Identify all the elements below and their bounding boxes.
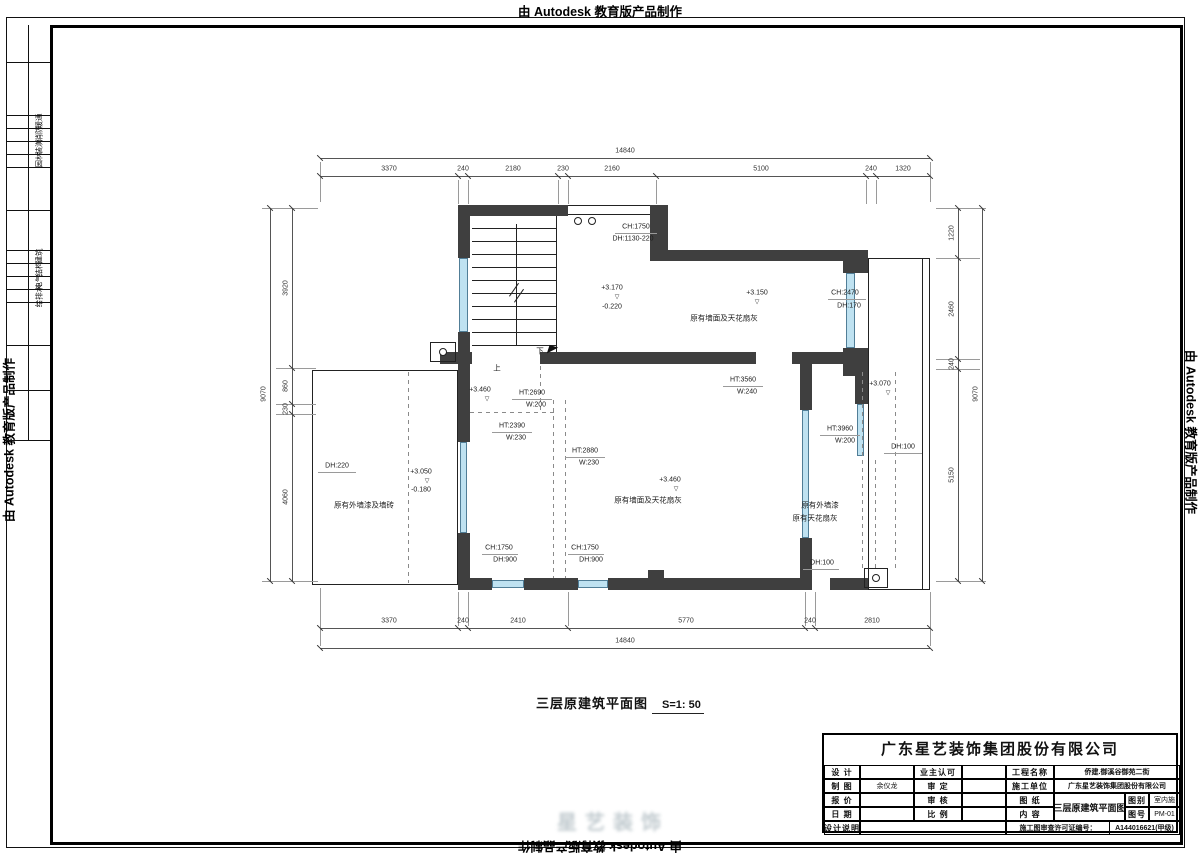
titleblock-project-name-value: 侨建.御溪谷御苑二街 bbox=[1054, 765, 1180, 779]
plan-line bbox=[472, 306, 556, 307]
plan-line bbox=[509, 283, 519, 297]
dimension-text: 9070 bbox=[261, 386, 268, 402]
extension-line bbox=[803, 569, 839, 570]
dimension-text: 5150 bbox=[949, 467, 956, 483]
titleblock-quote-value bbox=[860, 793, 914, 807]
titleblock-drafting-label: 制 图 bbox=[824, 779, 860, 793]
plan-annotation: W:200 bbox=[835, 438, 855, 445]
extension-line bbox=[930, 162, 931, 202]
window-symbol bbox=[492, 580, 524, 588]
plan-annotation: W:240 bbox=[737, 389, 757, 396]
plan-line bbox=[472, 293, 556, 294]
level-marker-icon: ▽ bbox=[615, 294, 620, 301]
dimension-text: 860 bbox=[283, 380, 290, 392]
plan-annotation: CH:2470 bbox=[831, 290, 859, 297]
dimension-line bbox=[958, 208, 959, 581]
titleblock-drawing-title-value: 三层原建筑平面图 bbox=[1054, 793, 1125, 821]
plan-line bbox=[568, 214, 650, 215]
titleblock-date-value bbox=[860, 807, 914, 821]
dimension-line bbox=[320, 176, 930, 177]
wall-segment bbox=[458, 205, 568, 216]
dimension-text: 2460 bbox=[949, 301, 956, 317]
plan-annotation: W:230 bbox=[579, 460, 599, 467]
extension-line bbox=[568, 554, 604, 555]
dashed-line bbox=[470, 412, 556, 413]
dimension-text: 3920 bbox=[283, 280, 290, 296]
wall-segment bbox=[458, 578, 492, 590]
titleblock-approval-value bbox=[962, 779, 1006, 793]
dimension-text: 2160 bbox=[604, 166, 620, 173]
plan-line bbox=[568, 205, 650, 206]
extension-line bbox=[936, 208, 986, 209]
plan-annotation: DH:170 bbox=[837, 303, 861, 310]
wall-segment bbox=[650, 250, 850, 261]
plan-annotation: -0.220 bbox=[602, 304, 622, 311]
company-watermark: 星艺装饰 bbox=[528, 806, 698, 835]
plan-annotation: CH:1750 bbox=[485, 545, 513, 552]
wall-segment bbox=[458, 216, 470, 258]
dimension-text: 240 bbox=[865, 166, 877, 173]
extension-line bbox=[458, 180, 459, 204]
window-symbol bbox=[846, 273, 855, 348]
titleblock-audit-label: 审 核 bbox=[914, 793, 962, 807]
extension-line bbox=[482, 554, 518, 555]
plan-annotation: DH:220 bbox=[325, 463, 349, 470]
extension-line bbox=[492, 432, 532, 433]
wall-segment bbox=[568, 352, 756, 364]
drawing-sheet: 由 Autodesk 教育版产品制作 由 Autodesk 教育版产品制作 由 … bbox=[0, 0, 1200, 859]
dimension-text: 3370 bbox=[381, 166, 397, 173]
plan-line bbox=[652, 713, 704, 714]
dimension-text: 240 bbox=[457, 618, 469, 625]
extension-line bbox=[568, 592, 569, 626]
extension-line bbox=[320, 162, 321, 202]
plan-line bbox=[472, 241, 556, 242]
dimension-line bbox=[982, 208, 983, 581]
titleblock-owner-approval-value bbox=[962, 765, 1006, 779]
wall-segment bbox=[830, 578, 868, 590]
wall-segment bbox=[843, 250, 868, 273]
dimension-text: 2410 bbox=[510, 618, 526, 625]
plan-annotation: W:230 bbox=[506, 435, 526, 442]
plan-line bbox=[472, 332, 556, 333]
extension-line bbox=[936, 581, 986, 582]
titleblock-design-value bbox=[860, 765, 914, 779]
extension-line bbox=[866, 180, 867, 204]
titleblock-project-name-label: 工程名称 bbox=[1006, 765, 1054, 779]
dashed-line bbox=[862, 372, 863, 570]
dashed-line bbox=[565, 400, 566, 578]
thin-outline bbox=[868, 258, 930, 590]
plan-annotation: HT:3960 bbox=[827, 426, 853, 433]
extension-line bbox=[568, 180, 569, 204]
dimension-text: 2810 bbox=[864, 618, 880, 625]
dimension-text: 2180 bbox=[505, 166, 521, 173]
titleblock-audit-value bbox=[962, 793, 1006, 807]
plan-caption-scale: S=1: 50 bbox=[662, 699, 701, 711]
plan-annotation: DH:900 bbox=[579, 557, 603, 564]
dimension-text: 240 bbox=[949, 358, 956, 370]
dimension-text: 1220 bbox=[949, 225, 956, 241]
wall-segment bbox=[648, 570, 664, 579]
dimension-line bbox=[292, 208, 293, 581]
titleblock-design-notes-value bbox=[860, 821, 1006, 835]
extension-line bbox=[320, 588, 321, 646]
plan-caption-title: 三层原建筑平面图 bbox=[536, 693, 648, 712]
plan-annotation: 原有墙面及天花扇灰 bbox=[614, 495, 682, 506]
titleblock-category-label: 图别 bbox=[1125, 793, 1149, 807]
extension-line bbox=[820, 435, 860, 436]
plan-line bbox=[472, 254, 556, 255]
plan-annotation: 原有天花扇灰 bbox=[793, 513, 838, 524]
dimension-text: 1320 bbox=[895, 166, 911, 173]
dimension-text: 5100 bbox=[753, 166, 769, 173]
plan-annotation: HT:2390 bbox=[499, 423, 525, 430]
extension-line bbox=[468, 180, 469, 204]
fixture-circle bbox=[574, 217, 582, 225]
titleblock-scale-value bbox=[962, 807, 1006, 821]
titleblock-design-label: 设 计 bbox=[824, 765, 860, 779]
plan-annotation: +3.460 bbox=[469, 387, 491, 394]
dashed-line bbox=[553, 400, 554, 578]
level-marker-icon: ▽ bbox=[425, 478, 430, 485]
dimension-line bbox=[320, 648, 930, 649]
titleblock-design-notes-label: 设计说明 bbox=[824, 821, 860, 835]
titleblock-date-label: 日 期 bbox=[824, 807, 860, 821]
plan-annotation: CH:1750 bbox=[622, 224, 650, 231]
wall-segment bbox=[800, 364, 812, 410]
plan-annotation: +3.150 bbox=[746, 290, 768, 297]
titleblock-approval-label: 审 定 bbox=[914, 779, 962, 793]
level-marker-icon: ▽ bbox=[674, 486, 679, 493]
plan-annotation: 原有外墙漆及墙砖 bbox=[334, 500, 394, 511]
plan-annotation: DH:900 bbox=[493, 557, 517, 564]
plan-annotation: +3.170 bbox=[601, 285, 623, 292]
window-symbol bbox=[459, 258, 468, 332]
company-name: 广东星艺装饰集团股份有限公司 bbox=[824, 735, 1176, 766]
dimension-text: 230 bbox=[557, 166, 569, 173]
dimension-line bbox=[320, 158, 930, 159]
plan-line bbox=[472, 267, 556, 268]
dashed-line bbox=[408, 372, 409, 583]
fixture-circle bbox=[588, 217, 596, 225]
dashed-line bbox=[875, 460, 876, 570]
dimension-text: 14840 bbox=[615, 638, 634, 645]
extension-line bbox=[512, 399, 552, 400]
dimension-text: 9070 bbox=[973, 386, 980, 402]
titleblock-permit-value: A144016621(甲级) bbox=[1110, 821, 1180, 835]
title-block: 广东星艺装饰集团股份有限公司 设 计业主认可工程名称侨建.御溪谷御苑二街制 图余… bbox=[822, 733, 1178, 833]
extension-line bbox=[876, 180, 877, 204]
plan-annotation: 下 bbox=[536, 346, 544, 357]
extension-line bbox=[615, 233, 657, 234]
wall-segment bbox=[792, 352, 868, 364]
plan-annotation: 上 bbox=[493, 363, 501, 374]
extension-line bbox=[930, 592, 931, 646]
plan-line bbox=[472, 319, 556, 320]
plan-annotation: 原有墙面及天花扇灰 bbox=[690, 313, 758, 324]
wall-segment bbox=[524, 578, 578, 590]
extension-line bbox=[565, 457, 605, 458]
titleblock-sheet-label: 图 纸 bbox=[1006, 793, 1054, 807]
plan-annotation: +3.050 bbox=[410, 469, 432, 476]
titleblock-quote-label: 报 价 bbox=[824, 793, 860, 807]
level-marker-icon: ▽ bbox=[755, 299, 760, 306]
plan-line bbox=[922, 258, 923, 590]
extension-line bbox=[656, 180, 657, 204]
extension-line bbox=[828, 299, 866, 300]
plan-annotation: 原有外墙漆 bbox=[801, 500, 839, 511]
titleblock-number-label: 图号 bbox=[1125, 807, 1149, 821]
dimension-line bbox=[270, 208, 271, 581]
floor-plan: 1484033702402180230216051002401320337024… bbox=[0, 0, 1200, 859]
plan-annotation: DH:100 bbox=[810, 560, 834, 567]
window-symbol bbox=[460, 442, 467, 533]
dashed-line bbox=[895, 372, 896, 570]
window-symbol bbox=[578, 580, 608, 588]
plan-annotation: +3.070 bbox=[869, 381, 891, 388]
plan-annotation: DH:100 bbox=[891, 444, 915, 451]
titleblock-number-value: PM-01 bbox=[1149, 807, 1180, 821]
plan-annotation: +3.460 bbox=[659, 477, 681, 484]
plan-line bbox=[472, 280, 556, 281]
plan-annotation: W:200 bbox=[526, 402, 546, 409]
dimension-text: 240 bbox=[457, 166, 469, 173]
fixture-circle bbox=[872, 574, 880, 582]
plan-line bbox=[556, 216, 557, 352]
extension-line bbox=[558, 180, 559, 204]
titleblock-content-label: 内 容 bbox=[1006, 807, 1054, 821]
extension-line bbox=[276, 368, 316, 369]
plan-annotation: DH:1130-220 bbox=[612, 236, 653, 243]
plan-line bbox=[472, 228, 556, 229]
dimension-text: 4060 bbox=[283, 489, 290, 505]
titleblock-permit-label: 施工图审查许可证编号： bbox=[1006, 821, 1110, 835]
wall-segment bbox=[458, 364, 470, 442]
titleblock-owner-approval-label: 业主认可 bbox=[914, 765, 962, 779]
titleblock-contractor-label: 施工单位 bbox=[1006, 779, 1054, 793]
level-marker-icon: ▽ bbox=[886, 390, 891, 397]
dimension-text: 14840 bbox=[615, 148, 634, 155]
plan-annotation: HT:2880 bbox=[572, 448, 598, 455]
dimension-text: 240 bbox=[804, 618, 816, 625]
titleblock-category-value: 室内施 bbox=[1149, 793, 1180, 807]
fixture-circle bbox=[439, 348, 447, 356]
titleblock-contractor-value: 广东星艺装饰集团股份有限公司 bbox=[1054, 779, 1180, 793]
wall-segment bbox=[608, 578, 802, 590]
plan-annotation: CH:1750 bbox=[571, 545, 599, 552]
extension-line bbox=[884, 453, 922, 454]
titleblock-drafter-value: 余仪龙 bbox=[860, 779, 914, 793]
dimension-text: 3370 bbox=[381, 618, 397, 625]
plan-annotation: HT:2690 bbox=[519, 390, 545, 397]
thin-outline bbox=[312, 370, 458, 585]
dimension-line bbox=[320, 628, 930, 629]
titleblock-scale-label: 比 例 bbox=[914, 807, 962, 821]
extension-line bbox=[318, 472, 356, 473]
plan-annotation: -0.180 bbox=[411, 487, 431, 494]
level-marker-icon: ▽ bbox=[485, 396, 490, 403]
dimension-text: 230 bbox=[283, 403, 290, 415]
dimension-text: 5770 bbox=[678, 618, 694, 625]
extension-line bbox=[723, 386, 763, 387]
plan-caption: 三层原建筑平面图S=1: 50 bbox=[536, 693, 701, 713]
plan-annotation: HT:3560 bbox=[730, 377, 756, 384]
